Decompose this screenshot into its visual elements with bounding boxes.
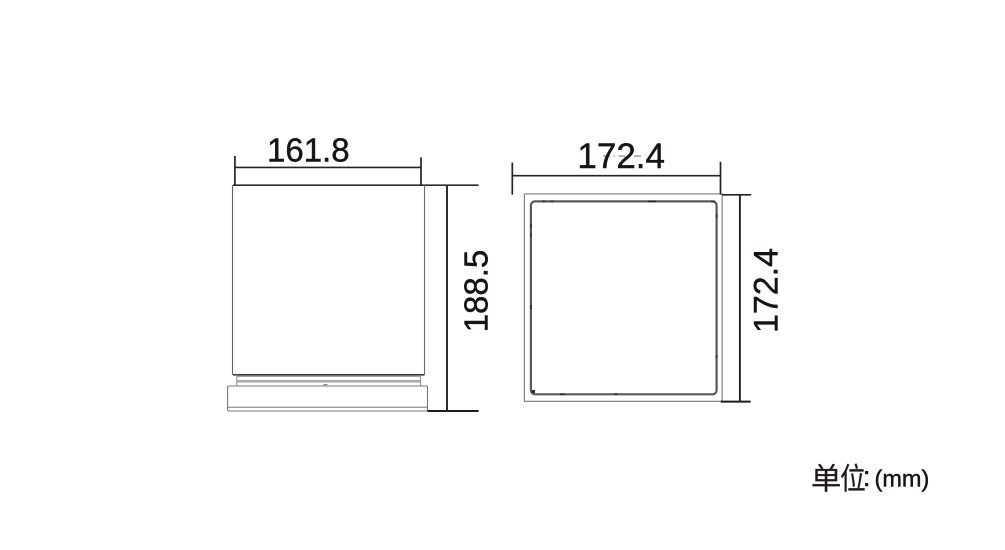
svg-text:161.8: 161.8 <box>267 131 350 168</box>
svg-text:188.5: 188.5 <box>457 250 494 333</box>
svg-text:172.4: 172.4 <box>748 248 786 333</box>
svg-text:172.4: 172.4 <box>577 137 665 176</box>
svg-text:(mm): (mm) <box>875 465 930 491</box>
